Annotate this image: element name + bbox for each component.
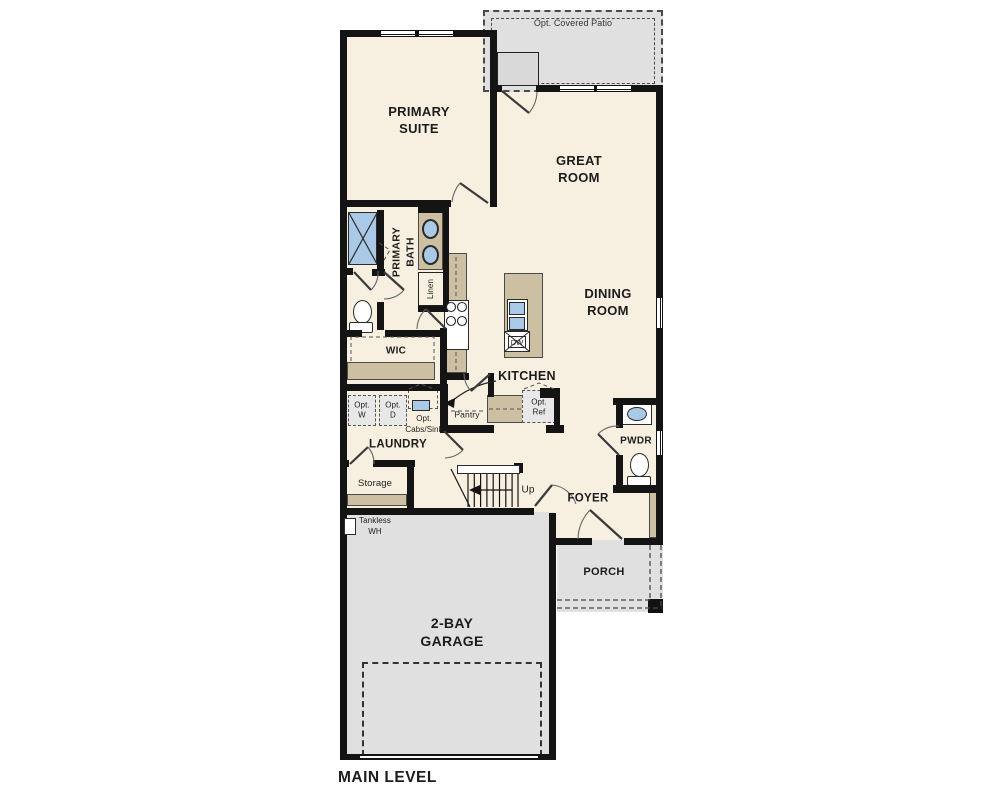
linen-label: Linen: [426, 279, 436, 299]
counter-dashed-lines: [351, 243, 554, 411]
porch-label: PORCH: [583, 565, 624, 579]
plan-title: MAIN LEVEL: [338, 768, 437, 788]
pantry-label: Pantry: [454, 409, 479, 420]
plan-linework: [0, 0, 1000, 800]
room-label-pwdr: PWDR: [620, 435, 652, 448]
opt-washer-label: Opt. W: [354, 400, 370, 419]
stairs: [451, 469, 518, 507]
room-label-wic: WIC: [386, 345, 406, 358]
range-burners: [447, 303, 467, 326]
room-label-garage: 2-BAY GARAGE: [420, 614, 483, 650]
shower-x: [349, 213, 377, 264]
room-label-foyer: FOYER: [567, 492, 608, 507]
tankless-wh-label: Tankless WH: [359, 516, 391, 538]
room-label-great-room: GREAT ROOM: [556, 153, 602, 187]
room-label-kitchen: KITCHEN: [498, 368, 556, 384]
room-label-laundry: LAUNDRY: [369, 438, 427, 453]
opt-cabs-sink-label: Opt. Cabs/Sink: [405, 414, 442, 436]
room-label-dining-room: DINING ROOM: [584, 286, 631, 320]
stairs-up-label: Up: [522, 484, 535, 497]
patio-label: Opt. Covered Patio: [534, 18, 612, 30]
floor-plan: DW: [0, 0, 1000, 800]
opt-ref-label: Opt. Ref: [531, 397, 547, 416]
room-label-primary-bath: PRIMARY BATH: [390, 227, 417, 277]
room-label-primary-suite: PRIMARY SUITE: [388, 104, 450, 138]
dishwasher-x: [505, 332, 529, 351]
kitchen-leader-line: [444, 381, 496, 408]
storage-label: Storage: [358, 478, 392, 490]
opt-dryer-label: Opt. D: [385, 400, 401, 419]
